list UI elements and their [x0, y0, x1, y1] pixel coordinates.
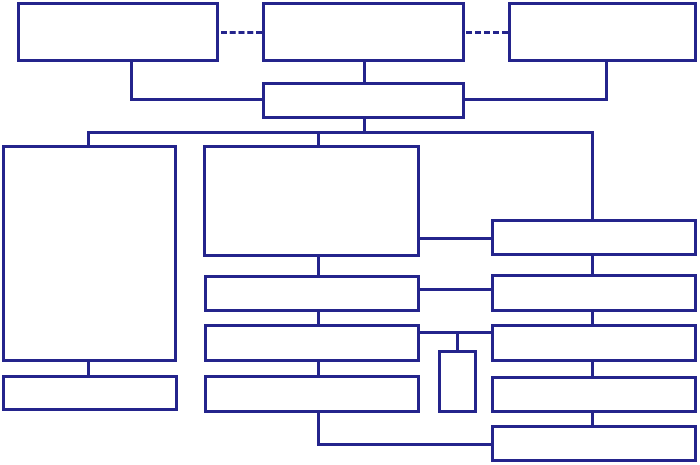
top-left-box: [17, 2, 219, 62]
bus-to-right1-connector: [591, 131, 594, 221]
flowchart-canvas: [0, 0, 700, 465]
left-bottom-box: [2, 375, 178, 411]
center-right1-connector: [419, 237, 492, 240]
middle-box-4: [204, 375, 420, 413]
dashed-link-right: [466, 31, 508, 34]
center-large-box: [203, 145, 420, 257]
hub-box: [262, 82, 465, 119]
top-right-box: [508, 2, 697, 62]
middle4-down-connector: [317, 411, 320, 446]
topleft-down-connector: [130, 60, 133, 101]
main-bus-connector: [88, 131, 594, 134]
middle-1-2-connector: [317, 255, 320, 277]
dashed-link-left: [221, 31, 262, 34]
small-vertical-box: [438, 350, 477, 413]
middle-box-2: [204, 275, 420, 312]
topright-down-connector: [605, 60, 608, 101]
left-tall-box: [2, 145, 177, 362]
bottom-elbow-connector: [317, 443, 492, 446]
right-box-1: [491, 219, 697, 256]
topcenter-down-connector: [363, 60, 366, 84]
middle-box-3: [204, 324, 420, 362]
topright-elbow-connector: [463, 98, 608, 101]
right-box-2: [491, 274, 697, 312]
right-box-4: [491, 376, 697, 413]
topleft-elbow-connector: [130, 98, 263, 101]
right-1-2-connector: [591, 254, 594, 276]
right-box-3: [491, 324, 697, 362]
top-center-box: [262, 2, 465, 62]
right-box-5: [491, 425, 697, 462]
middle2-right2-connector: [419, 288, 492, 291]
smallbox-stub-connector: [456, 331, 459, 352]
